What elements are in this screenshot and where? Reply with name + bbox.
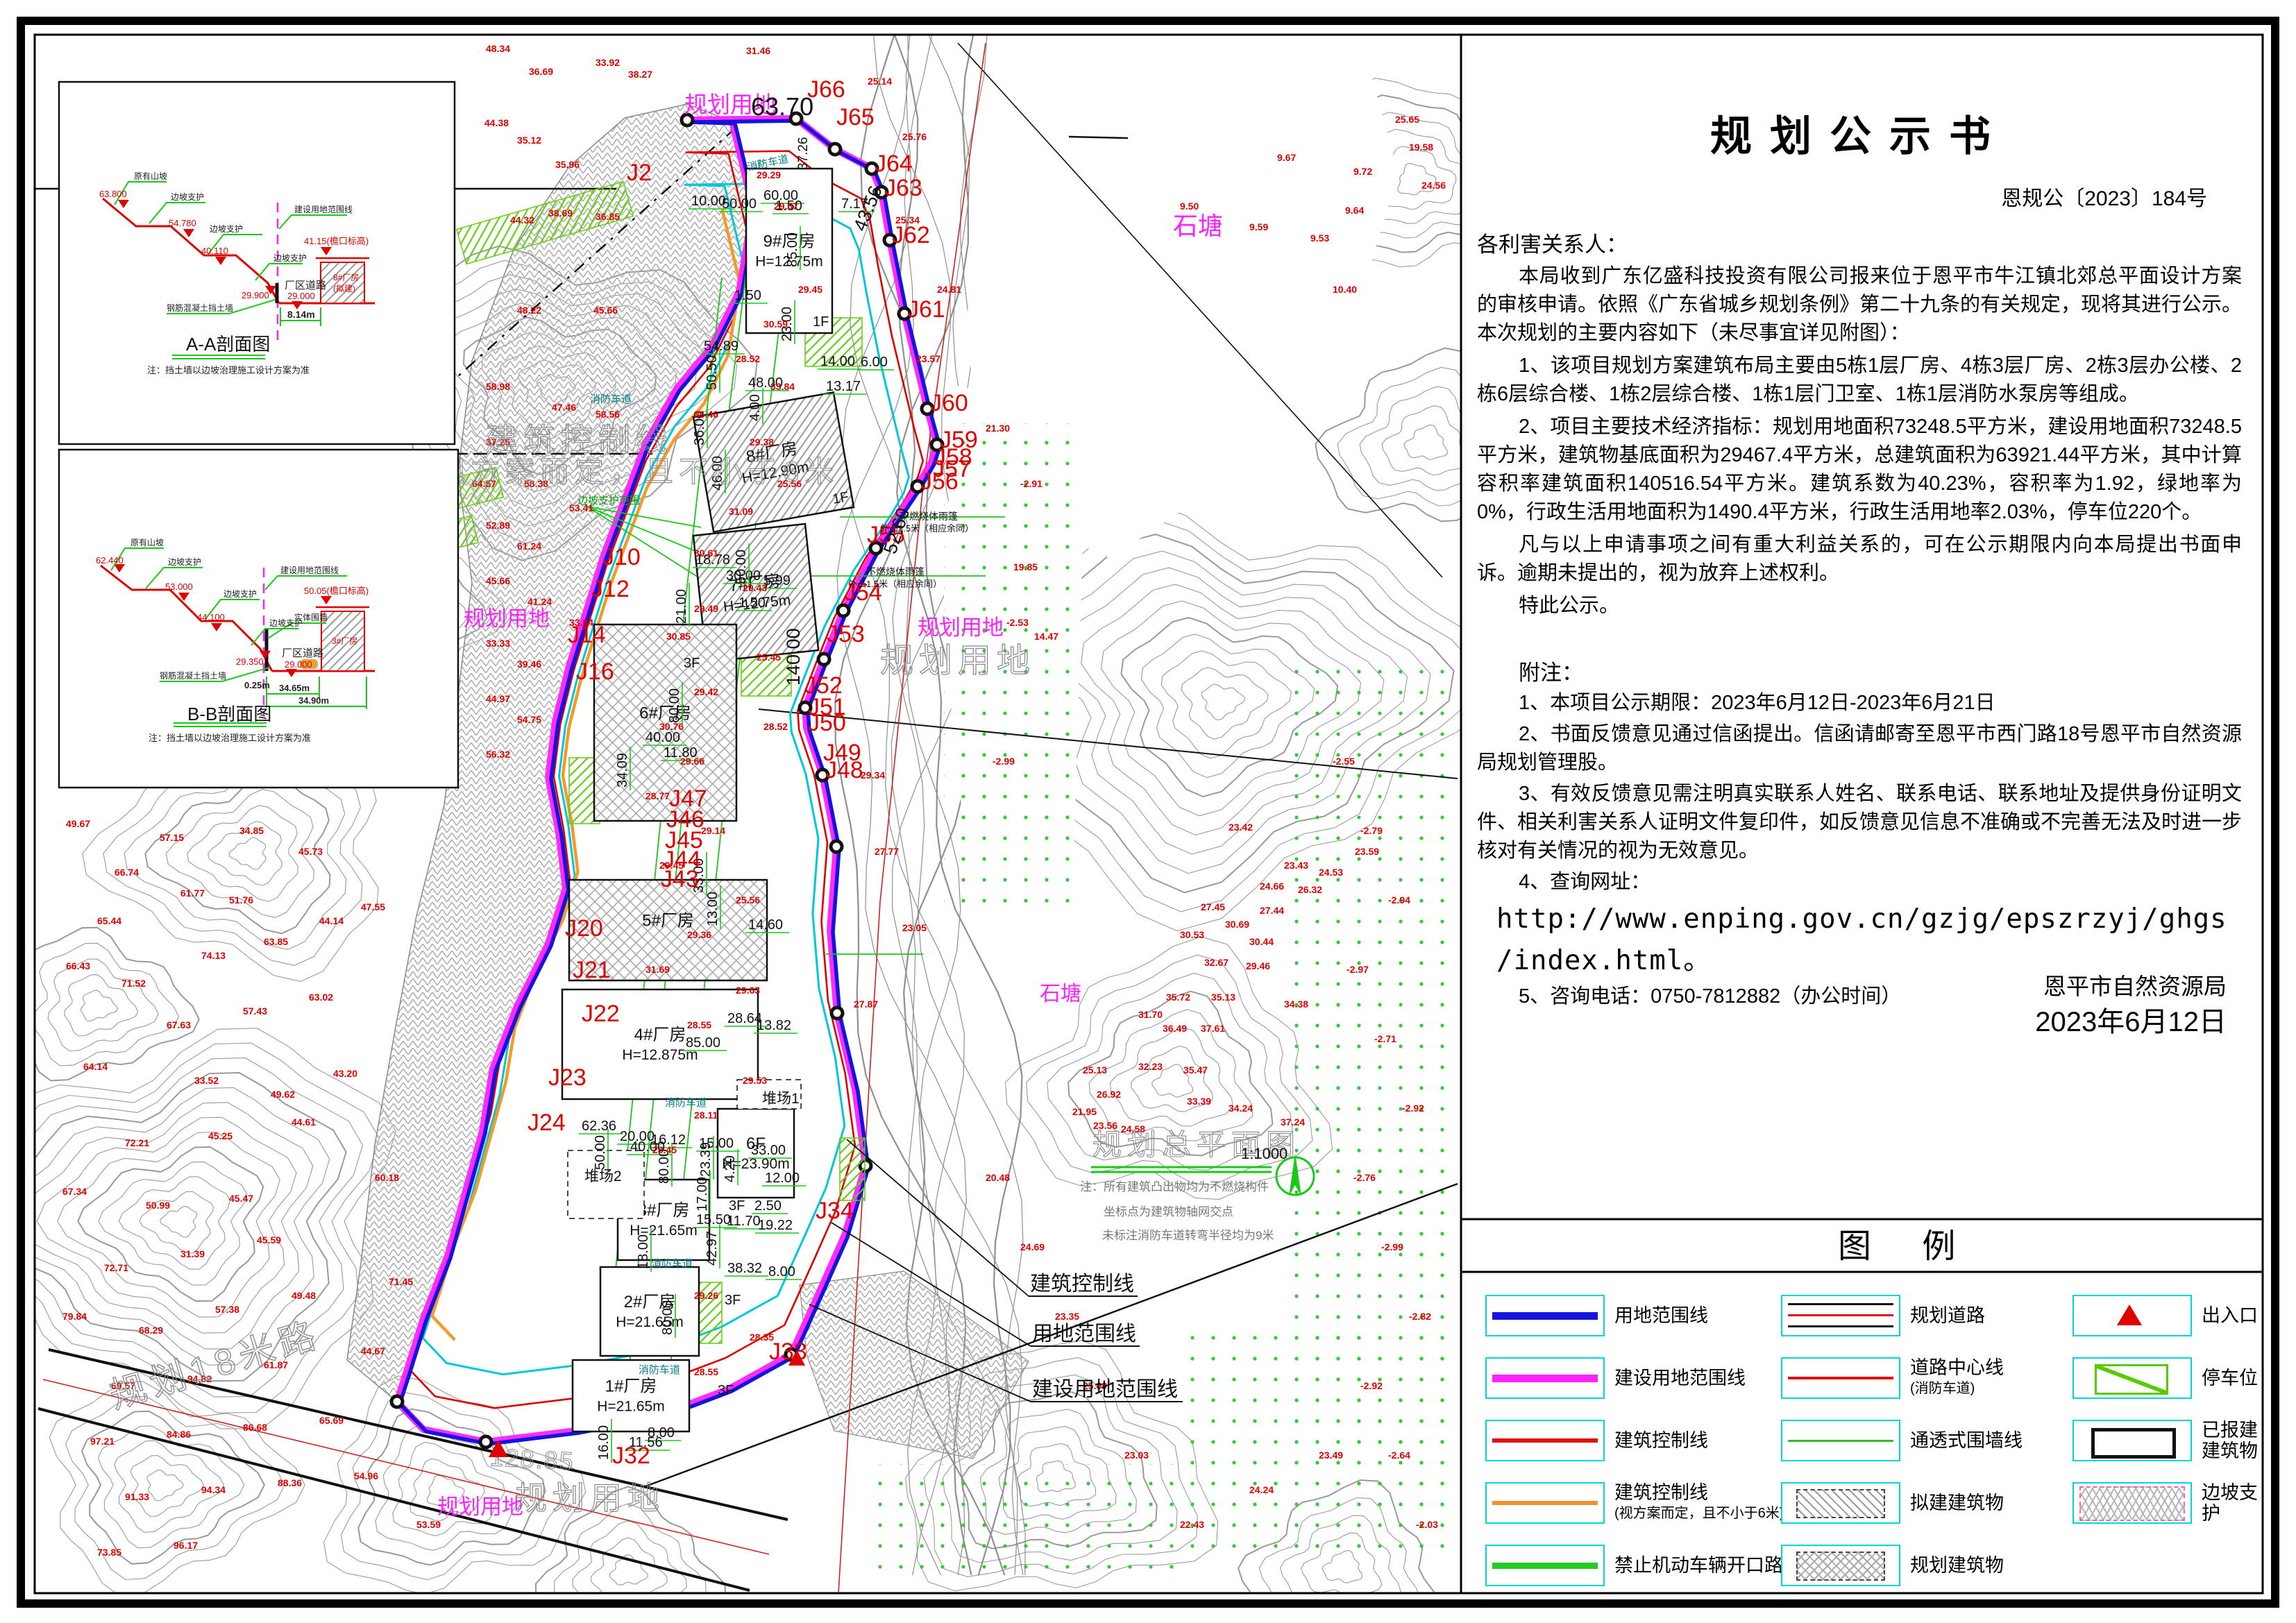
- spot-elevation: 29.49: [694, 603, 718, 614]
- spot-elevation: 65.69: [319, 1415, 344, 1426]
- legend-label: 建筑控制线(视方案而定，且不小于6米): [1614, 1482, 1784, 1524]
- spot-elevation: 88.36: [278, 1477, 302, 1488]
- j-point-label: J16: [576, 658, 614, 685]
- legend-label: 建设用地范围线: [1614, 1368, 1746, 1388]
- dimension: 19.22: [755, 1218, 799, 1233]
- doc-paragraph: 本局收到广东亿盛科技投资有限公司报来位于恩平市牛江镇北郊总平面设计方案的审核申请…: [1477, 262, 2242, 348]
- svg-text:0.25m: 0.25m: [244, 680, 270, 690]
- dimension: 54.89: [701, 339, 745, 354]
- dimension-text: 33.00: [751, 1143, 786, 1158]
- map-label: 规划用地: [880, 643, 1036, 679]
- spot-elevation: 23.05: [902, 922, 927, 933]
- j-point-label: J65: [836, 104, 875, 130]
- spot-elevation: 64.14: [83, 1061, 108, 1072]
- map-label: 3F: [718, 1383, 734, 1398]
- j-point-label: J56: [920, 468, 959, 495]
- dimension: 13.82: [754, 1018, 797, 1033]
- dimension-text: 38.32: [727, 1261, 762, 1276]
- dimension-text: 50.00: [734, 550, 749, 584]
- svg-text:41.15(檐口标高): 41.15(檐口标高): [304, 236, 369, 246]
- spot-elevation: 38.69: [548, 207, 573, 219]
- spot-elevation: 44.97: [486, 693, 510, 704]
- dimension-text: 4.00: [748, 394, 763, 421]
- spot-elevation: 24.69: [1020, 1241, 1045, 1252]
- spot-elevation: 51.76: [229, 894, 253, 906]
- legend-sublabel: (视方案而定，且不小于6米): [1614, 1503, 1784, 1524]
- dimension: 16.00: [596, 1419, 611, 1463]
- spot-elevation: 29.66: [680, 756, 704, 767]
- j-point-label: J24: [527, 1110, 566, 1136]
- spot-elevation: 49.67: [66, 818, 90, 829]
- notice-document: 规划公示书 恩规公〔2023〕184号 各利害关系人： 本局收到广东亿盛科技投资…: [1477, 103, 2242, 1011]
- svg-text:62.440: 62.440: [96, 555, 124, 566]
- spot-elevation: 29.53: [743, 1075, 767, 1086]
- spot-elevation: 35.96: [555, 159, 580, 170]
- legend-label: 禁止机动车辆开口路段: [1614, 1555, 1802, 1576]
- planned-building-icon: [1796, 1552, 1885, 1581]
- legend-item: 规划建筑物: [1781, 1534, 2023, 1597]
- spot-elevation: -2.82: [1409, 1311, 1431, 1322]
- map-label: 外凸1.5米（相应余同）: [880, 523, 974, 534]
- svg-text:34.65m: 34.65m: [279, 683, 310, 693]
- svg-text:(拟建): (拟建): [333, 284, 355, 294]
- dimension: 14.60: [745, 917, 789, 933]
- map-label: 不燃烧体雨篷: [900, 511, 958, 522]
- svg-text:3#厂房: 3#厂房: [332, 636, 357, 646]
- legend-swatch-slopeh: [2073, 1482, 2192, 1524]
- boundary-point-marker: [838, 605, 849, 616]
- spot-elevation: 49.48: [292, 1290, 316, 1301]
- svg-text:29.350: 29.350: [236, 656, 264, 667]
- spot-elevation: 29.43: [743, 582, 767, 593]
- j-point-label: J23: [548, 1064, 586, 1091]
- j-point-label: J53: [827, 621, 865, 647]
- dimension: 21.00: [674, 583, 689, 627]
- svg-text:53.000: 53.000: [165, 581, 193, 592]
- spot-elevation: 34.38: [1284, 999, 1308, 1010]
- contour-line: [1201, 684, 1244, 720]
- dimension: 85.00: [683, 1035, 727, 1051]
- spot-elevation: 67.34: [62, 1186, 87, 1197]
- spot-elevation: 45.73: [298, 846, 323, 857]
- spot-elevation: 25.13: [1083, 1064, 1107, 1076]
- legend-swatch-line: [1485, 1295, 1605, 1336]
- boundary-point-marker: [832, 1008, 843, 1019]
- svg-text:建设用地范围线: 建设用地范围线: [294, 205, 353, 214]
- dimension-text: 34.09: [615, 753, 630, 788]
- contour-line: [229, 838, 266, 869]
- dimension-text: 1.50: [734, 288, 761, 303]
- spot-elevation: 32.23: [1138, 1061, 1163, 1072]
- legend-sublabel: (消防车道): [1910, 1378, 2004, 1399]
- j-point-label: J50: [808, 710, 846, 736]
- map-label: 3F: [684, 656, 700, 671]
- spot-elevation: 72.71: [104, 1262, 128, 1273]
- spot-elevation: 84.86: [167, 1429, 191, 1440]
- spot-elevation: 36.85: [596, 211, 620, 222]
- legend-swatch-line: [1485, 1357, 1605, 1399]
- spot-elevation: 97.21: [90, 1436, 115, 1447]
- spot-elevation: 58.98: [486, 381, 510, 392]
- spot-elevation: 25.76: [902, 131, 927, 142]
- dimension: 50.00: [734, 543, 749, 587]
- legend-label: 出入口: [2202, 1305, 2258, 1326]
- built-building-icon: [2091, 1428, 2176, 1459]
- legend-item: 规划道路: [1781, 1284, 2023, 1347]
- spot-elevation: 22.43: [1180, 1519, 1204, 1530]
- legend-title: 图 例: [1838, 1228, 1976, 1265]
- map-label: 石塘: [1173, 212, 1223, 240]
- dimension-text: 13.82: [757, 1018, 791, 1033]
- spot-elevation: 29.42: [694, 686, 718, 697]
- spot-elevation: -2.99: [1381, 1241, 1403, 1252]
- spot-elevation: 23.35: [1055, 1311, 1079, 1322]
- dimension-text: 21.00: [674, 589, 689, 624]
- contour-line: [48, 959, 158, 1051]
- spot-elevation: 31.46: [746, 45, 770, 56]
- legend-item: 出入口: [2073, 1284, 2265, 1347]
- spot-elevation: 34.85: [239, 825, 264, 836]
- doc-salutation: 各利害关系人：: [1477, 227, 2242, 258]
- spot-elevation: 71.52: [121, 978, 146, 989]
- dimension-text: 16.00: [596, 1425, 611, 1460]
- spot-elevation: 23.59: [1355, 846, 1379, 857]
- entrance-icon: [2117, 1305, 2142, 1325]
- spot-elevation: -2.79: [1360, 825, 1383, 836]
- dimension: 42.97: [704, 1225, 720, 1268]
- dimension-text: 42.97: [704, 1231, 720, 1266]
- dimension-text: 2.50: [754, 1198, 782, 1214]
- spot-elevation: 26.92: [1097, 1089, 1121, 1100]
- spot-elevation: 36.46: [694, 409, 718, 420]
- vegetation-dots: [1180, 1325, 1451, 1561]
- building-outline: [600, 1267, 699, 1356]
- dimension-text: 8.00: [768, 1264, 795, 1280]
- contour-line: [591, 1538, 667, 1599]
- dimension-text: 13.00: [705, 892, 720, 926]
- spot-elevation: 65.44: [97, 915, 121, 926]
- svg-text:原有山坡: 原有山坡: [134, 171, 167, 181]
- building-label: 4#厂房: [634, 1026, 686, 1044]
- spot-elevation: 54.96: [354, 1470, 378, 1481]
- contour-line: [1382, 406, 1469, 475]
- spot-elevation: 29.14: [701, 825, 725, 836]
- svg-text:边坡支护: 边坡支护: [171, 192, 204, 202]
- j-point-label: J34: [816, 1198, 854, 1224]
- j-point-label: J32: [612, 1443, 650, 1469]
- legend-label: 已报建建筑物: [2202, 1420, 2265, 1461]
- spot-elevation: -2.64: [1388, 1450, 1410, 1461]
- map-label: 坐标点为建筑物轴网交点: [1104, 1205, 1233, 1218]
- callout-label: 建筑控制线: [1030, 1273, 1134, 1295]
- slope-protection-band-east: [800, 1271, 1029, 1459]
- map-label: 建筑控制线: [486, 422, 673, 458]
- spot-elevation: 9.53: [1310, 232, 1329, 244]
- legend-label: 规划建筑物: [1910, 1555, 2004, 1576]
- spot-elevation: 31.70: [1138, 1009, 1163, 1020]
- spot-elevation: 48.22: [517, 305, 541, 316]
- dimension-text: 17.00: [695, 1177, 710, 1212]
- spot-elevation: 30.76: [659, 721, 684, 732]
- svg-text:29.000: 29.000: [287, 291, 315, 301]
- spot-elevation: 30.53: [1180, 929, 1204, 940]
- doc-note: 4、查询网址：: [1477, 868, 2242, 897]
- spot-elevation: 23.42: [1229, 822, 1253, 833]
- spot-elevation: 49.62: [271, 1089, 295, 1100]
- svg-text:8.14m: 8.14m: [287, 309, 315, 320]
- dimension-text: 5.99: [763, 573, 791, 588]
- legend-item: 停车位: [2073, 1347, 2265, 1409]
- spot-elevation: -2.94: [1388, 894, 1410, 906]
- legend-swatch-line: [1781, 1420, 1900, 1461]
- legend-swatch-built: [2073, 1420, 2192, 1461]
- dimension-text: 6.00: [861, 355, 888, 370]
- spot-elevation: 27.77: [875, 846, 899, 857]
- spot-elevation: 23.57: [916, 353, 940, 364]
- dimension-text: 12.00: [765, 1171, 800, 1186]
- spot-elevation: 28.77: [645, 790, 670, 801]
- legend-label: 规划道路: [1910, 1305, 1985, 1326]
- spot-elevation: 24.24: [1249, 1484, 1274, 1495]
- building-label: 1#厂房: [605, 1377, 657, 1396]
- dimension-text: 40.00: [645, 730, 680, 745]
- spot-elevation: 66.74: [115, 867, 139, 878]
- dimension-text: 19.22: [758, 1218, 793, 1233]
- map-label: 消防车道: [651, 1258, 693, 1270]
- spot-elevation: 37.61: [1201, 1023, 1225, 1034]
- spot-elevation: 28.55: [694, 1366, 718, 1377]
- map-label: 不燃烧体雨篷: [866, 566, 925, 577]
- doc-note: 2、书面反馈意见通过信函提出。信函请邮寄至恩平市西门路18号恩平市自然资源局规划…: [1477, 720, 2242, 777]
- svg-text:边坡支护: 边坡支护: [223, 589, 257, 599]
- callout-label: 建设用地范围线: [1032, 1378, 1178, 1401]
- legend-label: 边坡支护: [2202, 1482, 2265, 1524]
- j-point-label: J14: [568, 622, 606, 648]
- spot-elevation: 56.32: [486, 749, 510, 760]
- dimension: 62.36: [579, 1119, 623, 1134]
- svg-text:54.780: 54.780: [169, 218, 196, 228]
- spot-elevation: 79.84: [62, 1311, 87, 1322]
- spot-elevation: 45.25: [208, 1130, 233, 1141]
- legend-item: 拟建建筑物: [1781, 1472, 2023, 1534]
- spot-elevation: 45.47: [229, 1193, 253, 1204]
- legend-column-2: 规划道路道路中心线(消防车道)通透式围墙线拟建建筑物规划建筑物: [1781, 1284, 2023, 1597]
- doc-paragraph: 特此公示。: [1477, 592, 2242, 620]
- spot-elevation: 73.85: [97, 1547, 121, 1558]
- spot-elevation: 28.11: [694, 1110, 718, 1121]
- spot-elevation: 30.85: [666, 631, 691, 642]
- svg-text:实体围墙: 实体围墙: [294, 612, 328, 622]
- spot-elevation: 21.30: [986, 423, 1010, 434]
- contour-line: [49, 1382, 305, 1595]
- spot-elevation: 41.24: [527, 596, 552, 607]
- legend-swatch-park: [2073, 1357, 2192, 1399]
- j-point-label: J43: [661, 866, 699, 892]
- contour-line: [147, 1470, 184, 1501]
- section-b-note: 注：挡土墙以边坡治理施工设计方案为准: [149, 733, 311, 743]
- spot-elevation: 86.68: [243, 1422, 267, 1433]
- dimension-text: 13.17: [826, 379, 861, 394]
- spot-elevation: 94.34: [201, 1484, 226, 1495]
- contour-line: [1181, 668, 1268, 739]
- callout-leader: [847, 1139, 1029, 1296]
- svg-text:钢筋混凝土挡土墙: 钢筋混凝土挡土墙: [160, 670, 226, 681]
- parking-icon: [2095, 1364, 2168, 1395]
- map-label: 堆场1: [762, 1091, 800, 1107]
- map-label: 3F: [729, 1198, 745, 1214]
- svg-text:钢筋混凝土挡土墙: 钢筋混凝土挡土墙: [167, 303, 233, 313]
- spot-elevation: 61.24: [517, 541, 541, 552]
- dimension-text: 15.50: [696, 1212, 731, 1227]
- legend-label: 建筑控制线: [1614, 1430, 1708, 1451]
- dimension-text: 11.70: [727, 1214, 761, 1229]
- dimension: 80.00: [660, 1294, 675, 1338]
- contour-line: [32, 943, 179, 1066]
- dimension-text: 50.50: [704, 355, 720, 390]
- j-point-label: J63: [884, 175, 922, 201]
- spot-elevation: 27.87: [854, 999, 878, 1010]
- spot-elevation: 35.12: [517, 135, 541, 146]
- proposed-building-icon: [1796, 1489, 1885, 1518]
- doc-paragraph: 2、项目主要技术经济指标：规划用地面积73248.5平方米，建设用地面积7324…: [1477, 413, 2242, 527]
- spot-elevation: 50.99: [146, 1200, 170, 1211]
- dimension: 23.39: [698, 1136, 714, 1180]
- dimension: 50.50: [704, 349, 720, 393]
- spot-elevation: 33.39: [1187, 1096, 1211, 1107]
- svg-text:29.000: 29.000: [285, 659, 312, 670]
- spot-elevation: 44.38: [484, 117, 509, 128]
- dimension-text: 80.00: [667, 688, 682, 723]
- slope-support-icon: [2079, 1486, 2185, 1521]
- dimension: 14.00: [818, 354, 861, 369]
- dimension: 17.00: [695, 1171, 710, 1214]
- spot-elevation: 36.69: [529, 66, 553, 77]
- dimension-text: 54.89: [704, 339, 738, 354]
- dimension-text: 10.00: [691, 194, 726, 209]
- spot-elevation: 29.34: [861, 770, 885, 781]
- spot-elevation: 44.32: [510, 214, 534, 226]
- spot-elevation: 34.24: [1229, 1103, 1253, 1114]
- map-label: 视方案而定，且不小于6米: [436, 455, 839, 488]
- dimension-text: 50.00: [593, 1135, 608, 1170]
- j-point-label: J12: [591, 576, 630, 602]
- dimension-text: 14.00: [820, 354, 855, 369]
- building: 2#厂房H=21.65m: [600, 1267, 699, 1356]
- spot-elevation: 61.77: [180, 887, 205, 899]
- spot-elevation: 28.52: [736, 353, 760, 364]
- boundary-point-marker: [831, 841, 842, 852]
- svg-text:原有山坡: 原有山坡: [130, 538, 164, 547]
- spot-elevation: 60.18: [375, 1172, 399, 1183]
- spot-elevation: 91.33: [125, 1491, 149, 1502]
- spot-elevation: 31.69: [645, 964, 670, 975]
- spot-elevation: -2.53: [1006, 617, 1029, 628]
- map-label: 37.26: [796, 137, 811, 170]
- spot-elevation: 33.33: [486, 638, 510, 649]
- contour-line: [119, 1177, 230, 1269]
- legend-item: 建筑控制线(视方案而定，且不小于6米): [1485, 1472, 1802, 1534]
- map-label: 注：所有建筑凸出物均为不燃烧构件: [1080, 1180, 1269, 1193]
- spot-elevation: 29.36: [687, 929, 711, 940]
- spot-elevation: 25.14: [868, 76, 892, 87]
- doc-paragraph: 1、该项目规划方案建筑布局主要由5栋1层厂房、4栋3层厂房、2栋3层办公楼、2栋…: [1477, 352, 2242, 409]
- svg-text:建设用地范围线: 建设用地范围线: [280, 566, 339, 575]
- plan-sheet: 9#厂房H=12.75m1F8#厂房H=12.90m1F7#厂房H=12.75m…: [0, 0, 2296, 1623]
- spot-elevation: 66.43: [66, 960, 90, 971]
- j-point-label: J2: [627, 160, 652, 186]
- spot-elevation: 36.49: [1163, 1023, 1187, 1034]
- spot-elevation: 63.02: [309, 992, 333, 1003]
- spot-elevation: -2.71: [1374, 1033, 1396, 1044]
- spot-elevation: -2.92: [1360, 1380, 1383, 1391]
- spot-elevation: 24.81: [937, 284, 961, 295]
- spot-elevation: 9.72: [1353, 166, 1372, 177]
- legend-label: 用地范围线: [1614, 1305, 1708, 1326]
- doc-paragraph: 凡与以上申请事项之间有重大利益关系的，可在公示期限内向本局提出书面申诉。逾期未提…: [1477, 531, 2242, 588]
- j-point-label: J20: [565, 915, 603, 942]
- spot-elevation: 31.39: [180, 1248, 205, 1259]
- legend-label: 停车位: [2202, 1368, 2258, 1388]
- spot-elevation: 28.55: [687, 1019, 711, 1030]
- spot-elevation: 27.45: [1201, 901, 1225, 912]
- doc-date: 2023年6月12日: [1477, 999, 2254, 1039]
- svg-text:40.110: 40.110: [201, 246, 228, 256]
- svg-text:厂区道路: 厂区道路: [285, 280, 326, 291]
- section-a-note: 注：挡土墙以边坡治理施工设计方案为准: [147, 365, 310, 375]
- spot-elevation: 23.43: [1284, 860, 1308, 871]
- spot-elevation: 32.67: [1204, 957, 1229, 968]
- dimension: 12.00: [762, 1171, 806, 1186]
- map-label: 140.00: [783, 628, 804, 686]
- svg-text:厂区道路: 厂区道路: [282, 647, 323, 659]
- vegetation-dots: [868, 1464, 1187, 1582]
- spot-elevation: 28.52: [763, 721, 788, 732]
- spot-elevation: 39.46: [517, 658, 541, 670]
- map-label: 消防车道: [665, 1097, 707, 1109]
- j-point-label: J48: [825, 757, 863, 783]
- j-point-label: J22: [582, 1001, 620, 1027]
- contour-line: [1404, 425, 1448, 459]
- spot-elevation: 53.59: [416, 1519, 441, 1530]
- legend-column-3: 出入口停车位已报建建筑物边坡支护: [2073, 1284, 2265, 1534]
- svg-text:63.800: 63.800: [99, 189, 127, 199]
- legend-item: 用地范围线: [1485, 1284, 1802, 1347]
- dimension-text: 85.00: [785, 232, 800, 267]
- doc-title: 规划公示书: [1477, 103, 2242, 163]
- boundary-point-marker: [818, 654, 829, 665]
- spot-elevation: 33.52: [194, 1075, 219, 1086]
- j-point-label: J60: [930, 390, 968, 416]
- spot-elevation: 57.43: [243, 1005, 267, 1017]
- legend-item: 道路中心线(消防车道): [1781, 1347, 2023, 1409]
- spot-elevation: 23.49: [1319, 1450, 1343, 1461]
- contour-line: [78, 1147, 263, 1301]
- legend-swatch-hatchd: [1781, 1482, 1900, 1524]
- legend-label: 拟建建筑物: [1910, 1493, 2004, 1513]
- legend-item: 已报建建筑物: [2073, 1409, 2265, 1472]
- spot-elevation: 9.50: [1180, 201, 1199, 212]
- spot-elevation: 45.66: [593, 305, 618, 316]
- j-point-label: J10: [602, 544, 641, 570]
- callout-label: 用地范围线: [1032, 1323, 1136, 1345]
- svg-text:8#厂房: 8#厂房: [333, 272, 359, 282]
- dimension: 13.00: [705, 885, 720, 929]
- spot-elevation: 30.59: [763, 318, 788, 330]
- spot-elevation: 35.13: [1211, 992, 1235, 1003]
- building-floors-label: 1F: [832, 489, 850, 507]
- spot-elevation: 58.56: [596, 409, 620, 420]
- doc-agency: 恩平市自然资源局: [1477, 968, 2275, 1001]
